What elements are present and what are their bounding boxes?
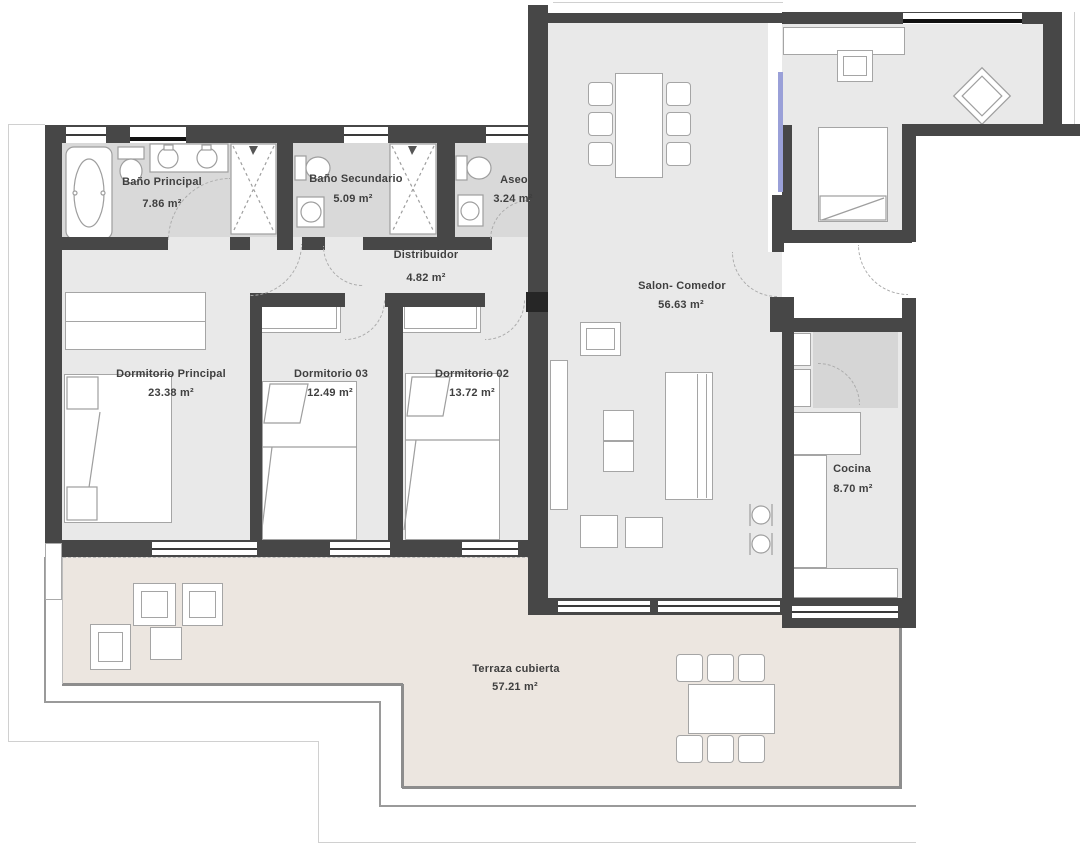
double-sink-icon: [150, 144, 228, 172]
window-glass-line: [903, 19, 1022, 23]
window-glass-line: [658, 605, 780, 607]
shower-icon: [231, 144, 276, 234]
decor-diamond-icon: [954, 68, 1011, 125]
wall: [1043, 12, 1062, 133]
wall: [388, 293, 403, 540]
window: [558, 601, 650, 612]
room-area-bano-principal: 7.86 m²: [142, 198, 181, 210]
bed-pillow-neighbor: [820, 196, 886, 220]
wall-pillar: [526, 292, 548, 312]
terrace-pillar: [45, 543, 62, 600]
wall: [770, 297, 794, 332]
sink-icon: [297, 197, 324, 227]
wall: [250, 293, 262, 540]
room-area-aseo: 3.24 m²: [493, 193, 532, 205]
window-glass-line: [330, 548, 390, 550]
room-label-dormitorio-principal: Dormitorio Principal: [116, 368, 226, 380]
window: [658, 601, 780, 612]
room-area-cocina: 8.70 m²: [833, 483, 872, 495]
room-label-distribuidor: Distribuidor: [394, 249, 459, 261]
window-glass-line: [486, 134, 532, 136]
wall: [250, 293, 345, 307]
glass-accent-line: [778, 72, 783, 192]
room-label-dormitorio-02: Dormitorio 02: [435, 368, 509, 380]
room-area-terraza: 57.21 m²: [492, 681, 538, 693]
room-area-dormitorio-principal: 23.38 m²: [148, 387, 194, 399]
room-label-bano-principal: Baño Principal: [122, 176, 202, 188]
window-glass-line: [792, 611, 898, 613]
room-label-dormitorio-03: Dormitorio 03: [294, 368, 368, 380]
toilet-icon: [456, 156, 491, 180]
shower-icon: [390, 144, 436, 234]
room-area-salon-comedor: 56.63 m²: [658, 299, 704, 311]
wall: [528, 13, 783, 23]
wall: [782, 230, 912, 243]
wall: [437, 125, 455, 250]
floorplan: Baño Principal 7.86 m² Baño Secundario 5…: [0, 0, 1080, 856]
room-label-aseo: Aseo: [500, 174, 528, 186]
bed-detail-dorm02: [404, 377, 500, 530]
bathtub-icon: [66, 147, 112, 239]
window-glass-line: [558, 605, 650, 607]
bed-detail-principal: [67, 377, 100, 520]
window-glass-line: [462, 548, 518, 550]
bar-stool-icon: [750, 504, 772, 555]
wall: [902, 124, 916, 242]
room-area-dormitorio-03: 12.49 m²: [307, 387, 353, 399]
window-glass-line: [152, 548, 257, 550]
wall: [782, 125, 792, 232]
wall: [230, 237, 250, 250]
wall: [45, 125, 62, 543]
bed-detail-dorm03: [261, 384, 357, 537]
wall: [405, 293, 485, 307]
wall: [277, 125, 293, 250]
wall: [62, 237, 168, 250]
room-label-terraza: Terraza cubierta: [472, 663, 559, 675]
window-glass-line: [344, 134, 388, 136]
window-glass-line: [66, 134, 106, 136]
window-glass-line: [130, 137, 186, 141]
room-label-salon-comedor: Salon- Comedor: [638, 280, 726, 292]
room-label-cocina: Cocina: [833, 463, 871, 475]
room-area-distribuidor: 4.82 m²: [406, 272, 445, 284]
wall: [782, 332, 794, 598]
sink-icon: [458, 195, 483, 226]
room-label-bano-secundario: Baño Secundario: [309, 173, 402, 185]
wall: [45, 125, 548, 143]
wall: [302, 237, 325, 250]
wall: [902, 124, 1080, 136]
wall: [902, 298, 916, 628]
room-area-dormitorio-02: 13.72 m²: [449, 387, 495, 399]
room-area-bano-secundario: 5.09 m²: [333, 193, 372, 205]
